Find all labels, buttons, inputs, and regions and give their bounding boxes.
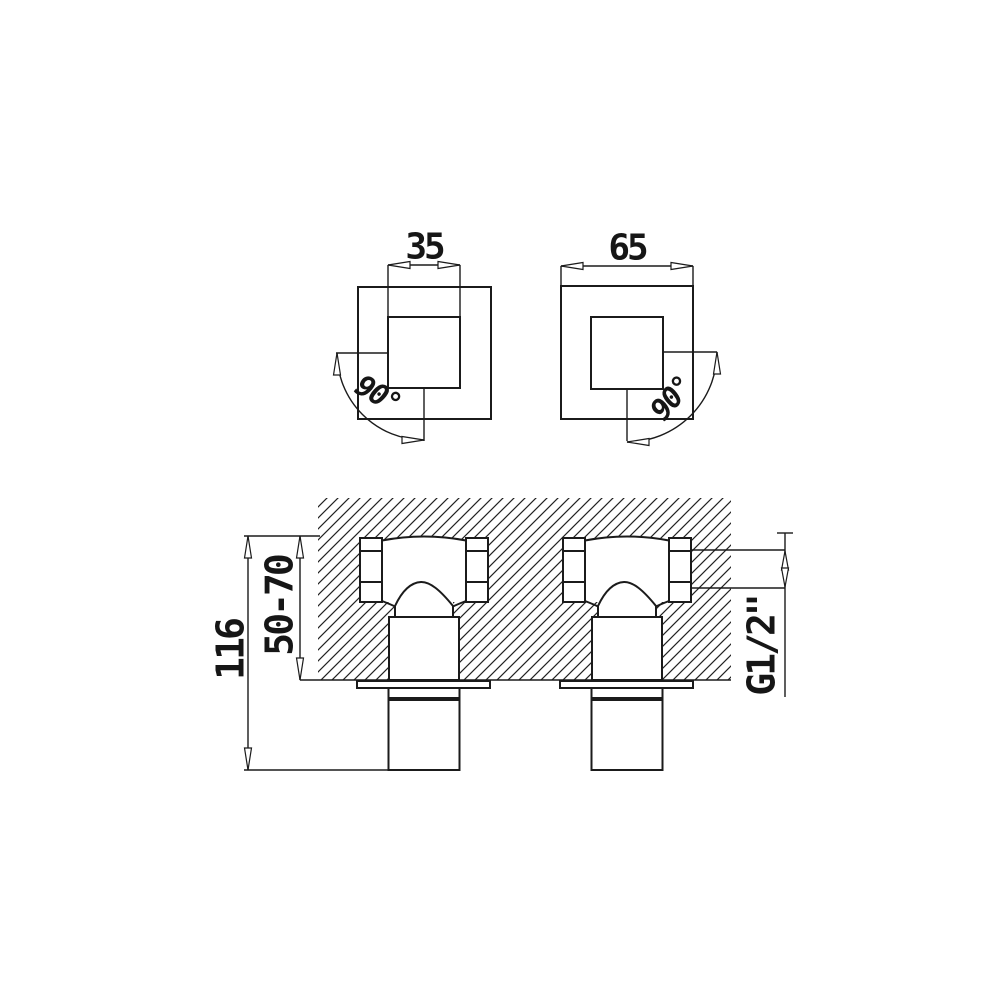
arrowhead [782,551,789,570]
dimension-thread: G1/2" [739,533,793,697]
arrowhead [402,437,424,444]
arrowhead [671,263,693,270]
width-label-35: 35 [405,227,444,268]
width-label-65: 65 [608,228,647,269]
arrowhead [297,536,304,558]
handle-outline-large [591,317,663,389]
arrowhead [561,263,583,270]
overall-height-label: 116 [208,619,252,680]
arrowhead [245,748,252,770]
top-view-large-handle: 65 90° [561,228,721,446]
handle-outline-small [388,317,460,388]
faucet-installation-drawing: 35 90° 65 90° [0,0,1000,1000]
arrowhead [627,439,649,446]
extension-lines-35 [388,265,460,317]
arrowhead [297,658,304,680]
arrowhead [245,536,252,558]
arrowhead [782,568,789,587]
arrowhead [714,352,721,374]
embedment-depth-label: 50-70 [257,555,301,656]
arrowhead [334,353,341,375]
dimension-50-70: 50-70 [257,536,303,680]
top-view-small-handle: 35 90° [334,227,492,444]
section-view: 116 50-70 G1/2" [208,498,793,771]
thread-size-label: G1/2" [739,596,783,695]
